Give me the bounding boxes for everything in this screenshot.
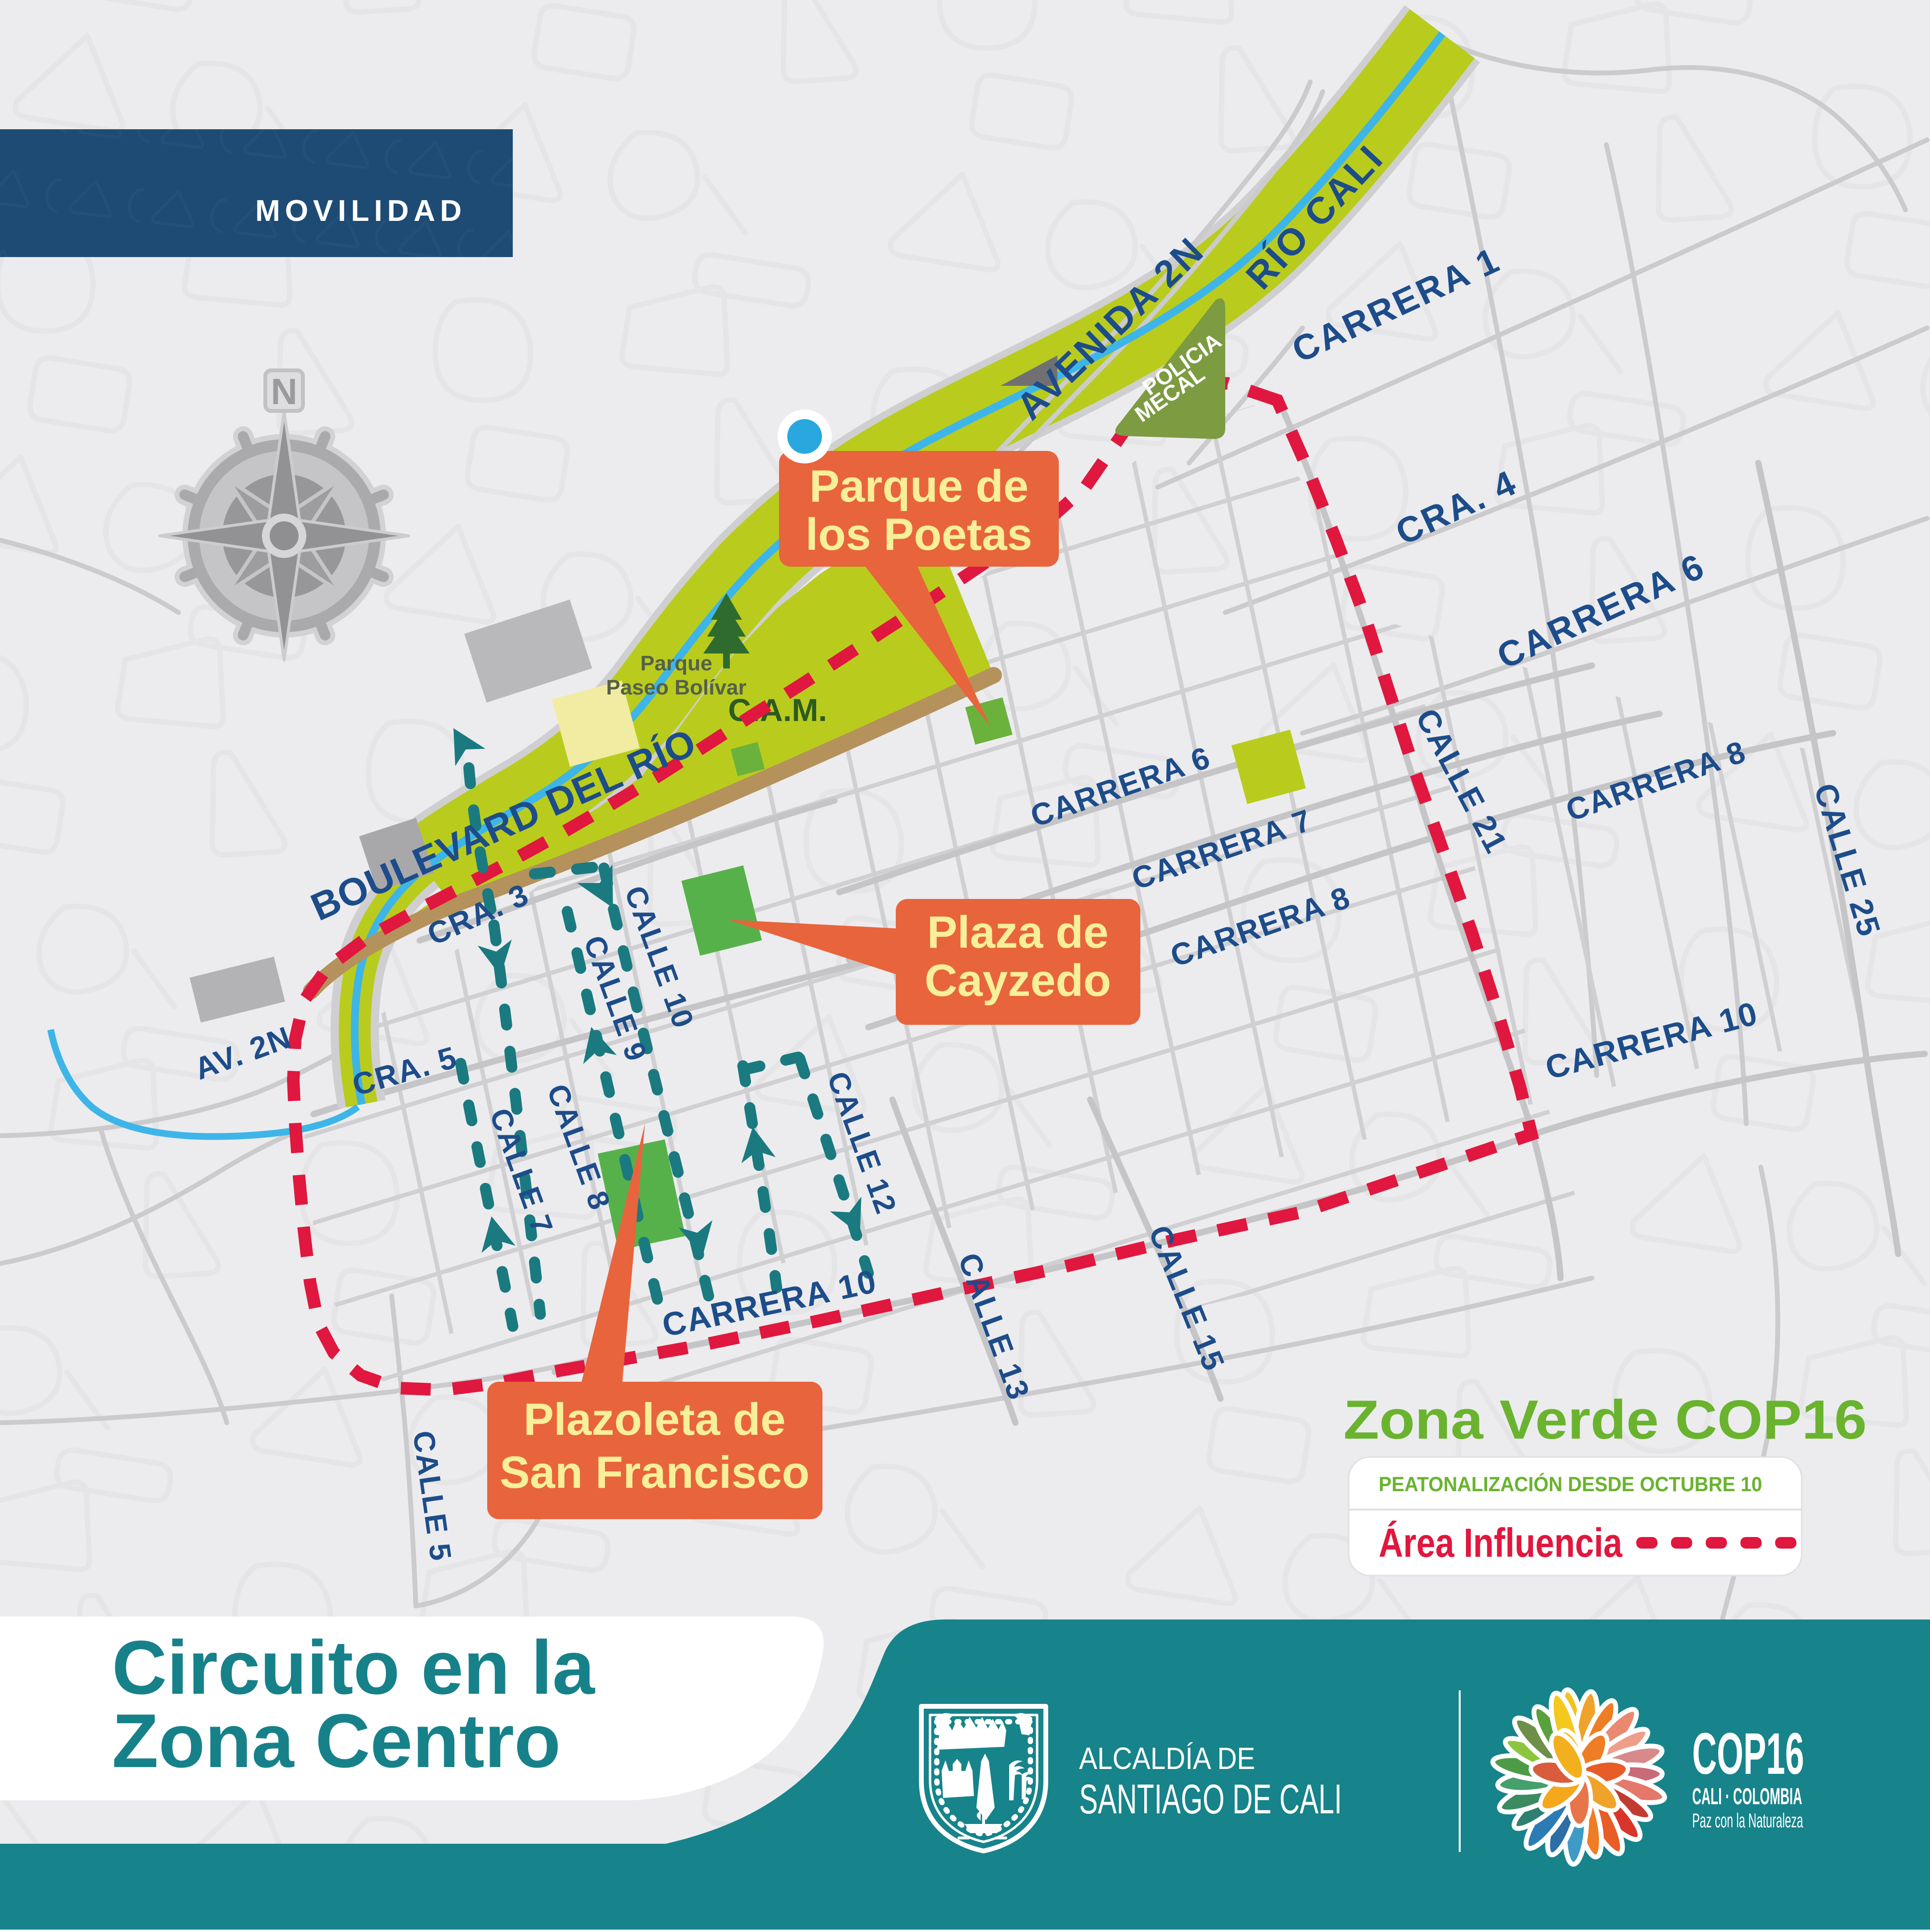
svg-text:Cayzedo: Cayzedo: [925, 955, 1111, 1006]
svg-text:N: N: [271, 371, 298, 412]
svg-text:CALI · COLOMBIA: CALI · COLOMBIA: [1692, 1784, 1802, 1810]
svg-text:Paseo Bolívar: Paseo Bolívar: [606, 676, 746, 699]
svg-text:Área Influencia: Área Influencia: [1379, 1520, 1623, 1565]
svg-text:Plaza de: Plaza de: [927, 907, 1109, 957]
svg-text:COP16: COP16: [1692, 1721, 1804, 1786]
svg-text:Zona Verde COP16: Zona Verde COP16: [1343, 1389, 1867, 1451]
svg-text:PEATONALIZACIÓN DESDE OCTUBRE: PEATONALIZACIÓN DESDE OCTUBRE 10: [1379, 1472, 1762, 1496]
svg-text:los Poetas: los Poetas: [806, 509, 1032, 559]
svg-text:Paz con la Naturaleza: Paz con la Naturaleza: [1692, 1809, 1803, 1832]
svg-text:Parque: Parque: [640, 652, 712, 675]
svg-text:Zona Centro: Zona Centro: [112, 1699, 561, 1783]
svg-text:Circuito en la: Circuito en la: [112, 1625, 595, 1710]
svg-text:ALCALDÍA DE: ALCALDÍA DE: [1079, 1741, 1255, 1776]
svg-text:Plazoleta de: Plazoleta de: [523, 1394, 785, 1444]
svg-text:SANTIAGO DE CALI: SANTIAGO DE CALI: [1079, 1776, 1342, 1823]
svg-text:Parque de: Parque de: [809, 461, 1029, 511]
svg-text:San Francisco: San Francisco: [500, 1447, 810, 1497]
svg-text:MOVILIDAD: MOVILIDAD: [255, 194, 466, 228]
